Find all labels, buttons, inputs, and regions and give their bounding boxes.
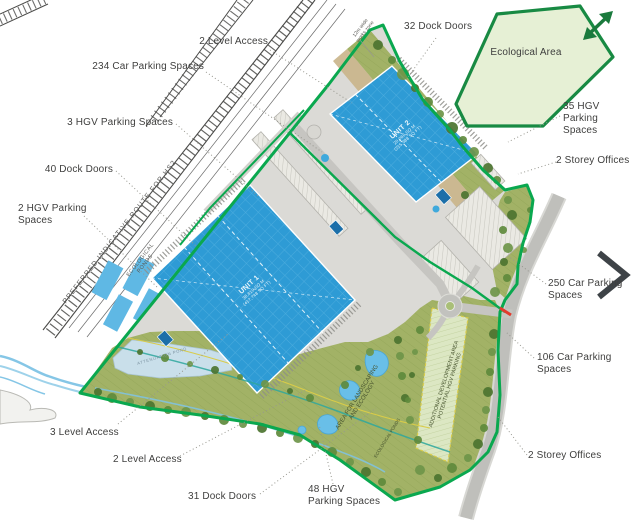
- site-masterplan: 2 Level Access 234 Car Parking Spaces 3 …: [0, 0, 635, 520]
- callout-hgv-parking-48: 48 HGV Parking Spaces: [308, 484, 382, 508]
- callout-car-parking-234: 234 Car Parking Spaces: [24, 61, 204, 73]
- roundabout-island: [446, 302, 455, 311]
- label-ecological-area: Ecological Area: [466, 47, 586, 59]
- callout-storey-offices-lower: 2 Storey Offices: [528, 450, 623, 462]
- callout-hgv-parking-2: 2 HGV Parking Spaces: [18, 203, 90, 227]
- callout-dock-doors-40: 40 Dock Doors: [0, 164, 113, 176]
- callout-level-access-3: 3 Level Access: [50, 427, 119, 439]
- callout-hgv-parking-3: 3 HGV Parking Spaces: [0, 117, 173, 129]
- callout-car-parking-106: 106 Car Parking Spaces: [537, 352, 619, 376]
- callout-storey-offices-upper: 2 Storey Offices: [556, 155, 635, 167]
- turning-head: [307, 125, 321, 139]
- callout-car-parking-250: 250 Car Parking Spaces: [548, 278, 630, 302]
- callout-level-access-top: 2 Level Access: [168, 36, 268, 48]
- callout-dock-doors-32: 32 Dock Doors: [404, 21, 472, 33]
- stream: [0, 356, 92, 424]
- callout-dock-doors-31: 31 Dock Doors: [188, 491, 256, 503]
- callout-hgv-parking-35: 35 HGV Parking Spaces: [563, 101, 633, 138]
- callout-level-access-2-bottom: 2 Level Access: [113, 454, 182, 466]
